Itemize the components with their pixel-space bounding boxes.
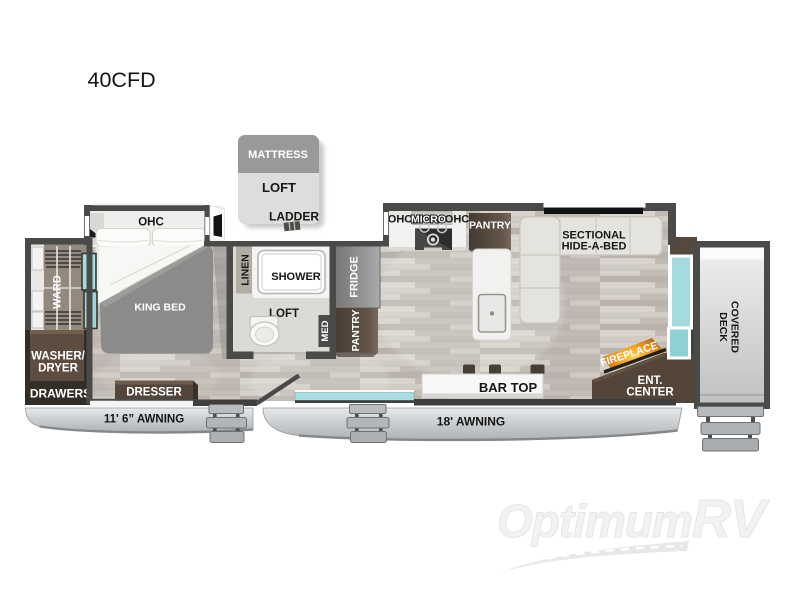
svg-text:18' AWNING: 18' AWNING	[437, 415, 505, 429]
svg-text:DRYER: DRYER	[38, 363, 79, 375]
svg-text:DRAWERS: DRAWERS	[30, 387, 91, 401]
svg-text:CENTER: CENTER	[626, 387, 674, 399]
svg-text:MED: MED	[320, 320, 331, 341]
svg-text:PANTRY: PANTRY	[469, 220, 511, 232]
svg-text:MICRO: MICRO	[411, 214, 446, 226]
svg-text:SHOWER: SHOWER	[271, 271, 321, 283]
svg-text:FRIDGE: FRIDGE	[349, 256, 361, 298]
svg-text:LADDER: LADDER	[269, 210, 319, 224]
svg-text:MATTRESS: MATTRESS	[248, 149, 308, 161]
svg-text:COVERED: COVERED	[729, 301, 741, 353]
svg-text:11' 6” AWNING: 11' 6” AWNING	[104, 414, 184, 426]
svg-text:DECK: DECK	[717, 312, 729, 342]
svg-text:40CFD: 40CFD	[88, 68, 156, 92]
svg-text:PANTRY: PANTRY	[350, 310, 362, 352]
svg-text:DRESSER: DRESSER	[126, 387, 182, 399]
svg-text:OptimumRV: OptimumRV	[497, 489, 770, 549]
svg-text:WARD: WARD	[52, 275, 64, 309]
svg-text:WASHER/: WASHER/	[31, 351, 85, 363]
svg-text:OHC: OHC	[138, 217, 164, 229]
svg-text:OHC: OHC	[445, 214, 470, 226]
svg-text:BAR TOP: BAR TOP	[479, 380, 538, 395]
svg-text:HIDE-A-BED: HIDE-A-BED	[562, 241, 627, 253]
svg-text:LOFT: LOFT	[262, 180, 296, 195]
svg-text:LINEN: LINEN	[240, 254, 252, 286]
svg-text:KING BED: KING BED	[134, 302, 186, 314]
svg-text:OHC: OHC	[388, 214, 413, 226]
svg-text:ENT.: ENT.	[638, 375, 663, 387]
